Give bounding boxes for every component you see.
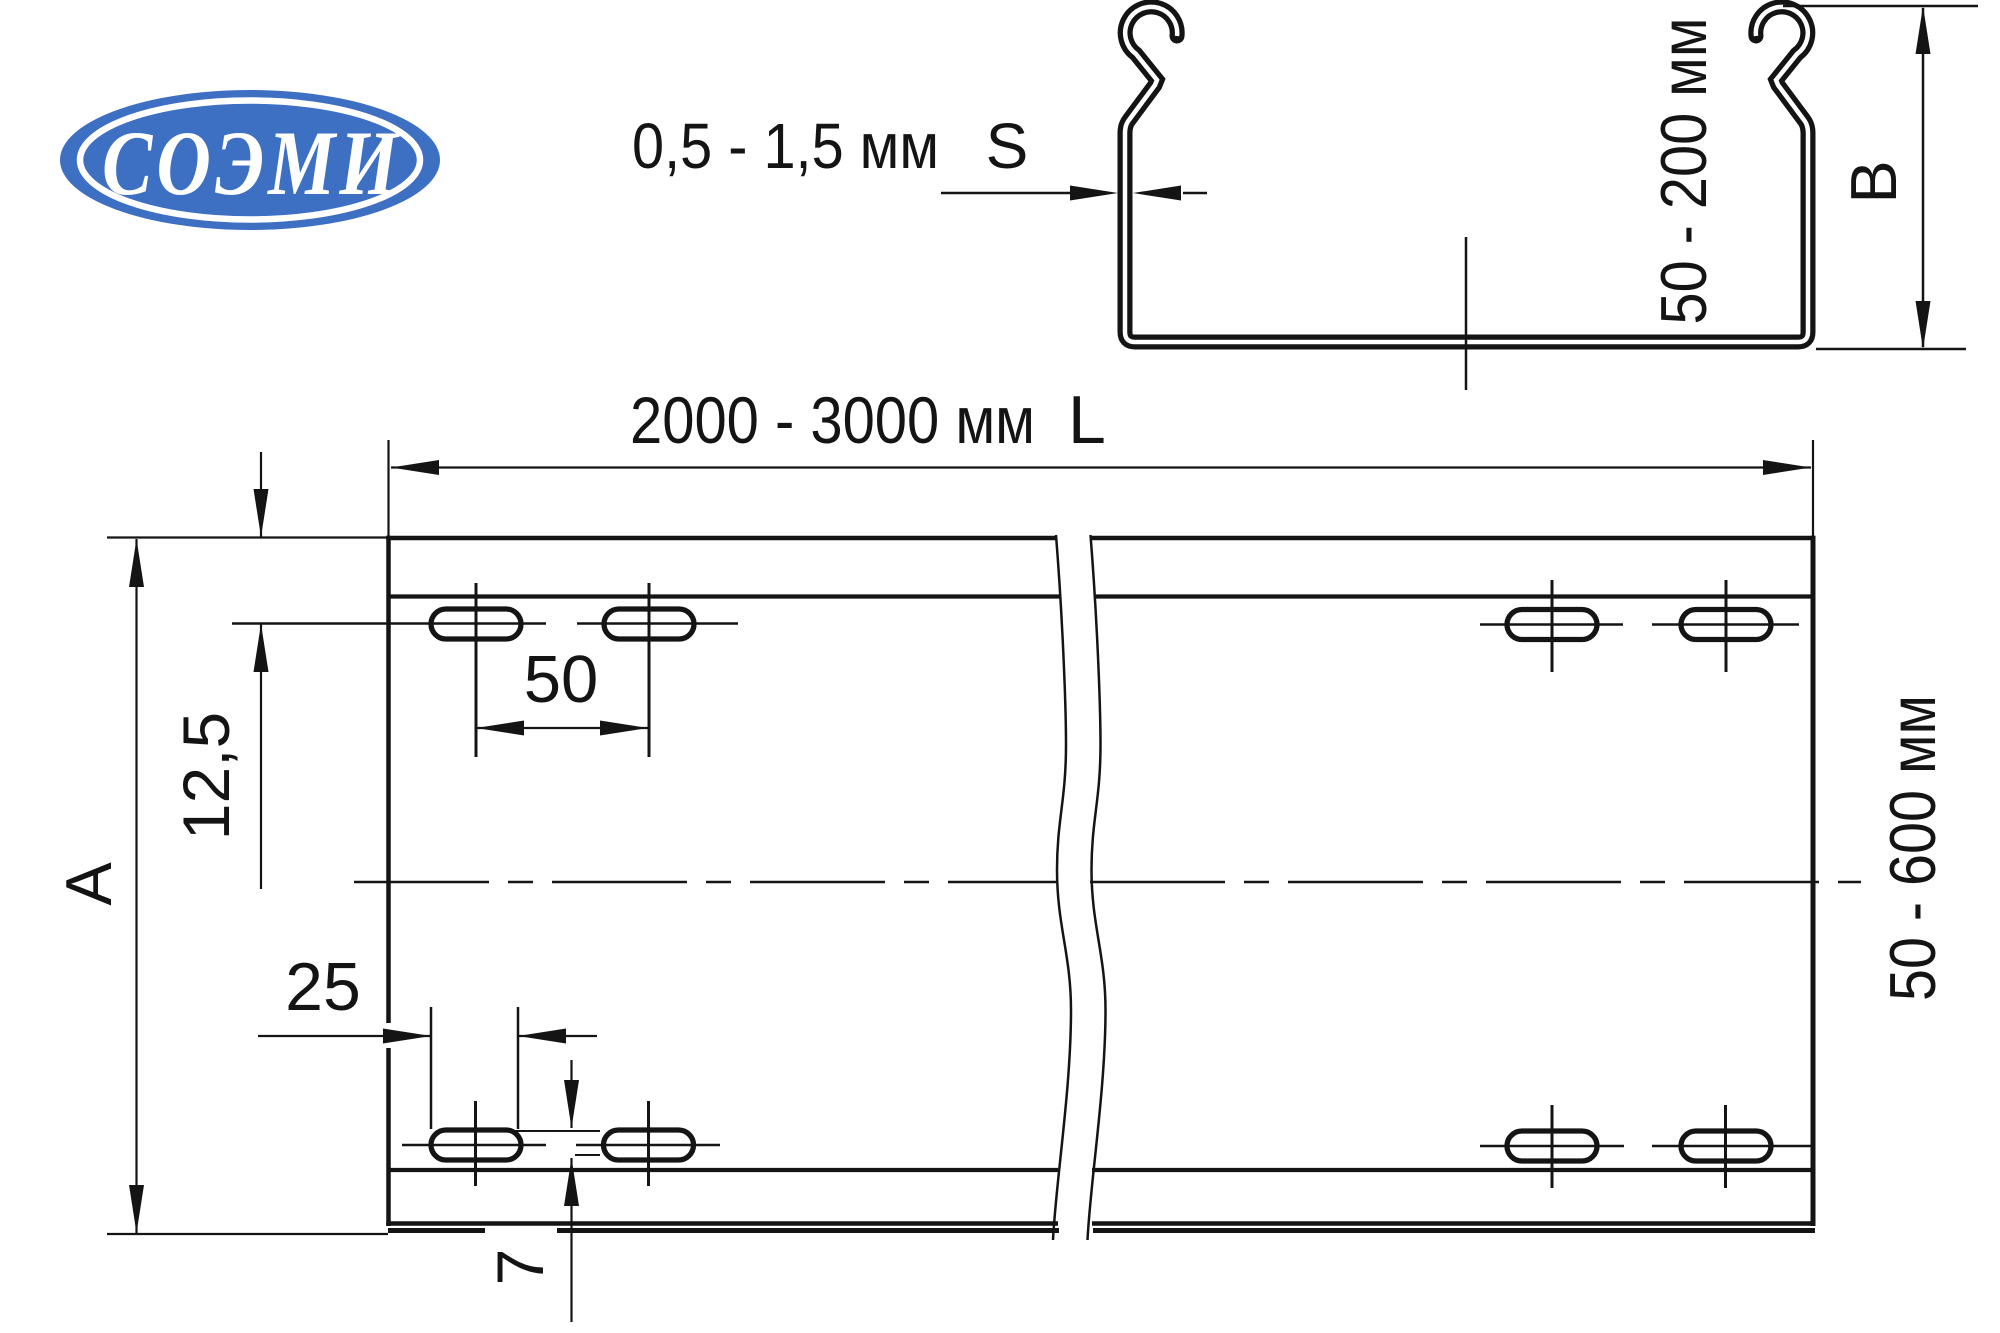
svg-text:L: L — [1068, 382, 1106, 458]
svg-text:50 - 600 мм: 50 - 600 мм — [1876, 695, 1949, 1001]
svg-text:0,5 - 1,5 мм: 0,5 - 1,5 мм — [632, 110, 939, 182]
svg-text:50: 50 — [524, 642, 599, 717]
svg-text:СОЭМИ: СОЭМИ — [102, 113, 400, 215]
svg-text:50 - 200 мм: 50 - 200 мм — [1647, 18, 1720, 325]
svg-text:B: B — [1837, 160, 1910, 203]
svg-text:A: A — [52, 862, 125, 906]
svg-text:25: 25 — [285, 949, 361, 1025]
svg-text:S: S — [986, 110, 1029, 182]
svg-text:7: 7 — [483, 1249, 557, 1286]
svg-text:2000 - 3000 мм: 2000 - 3000 мм — [630, 383, 1035, 457]
svg-text:12,5: 12,5 — [169, 712, 243, 840]
